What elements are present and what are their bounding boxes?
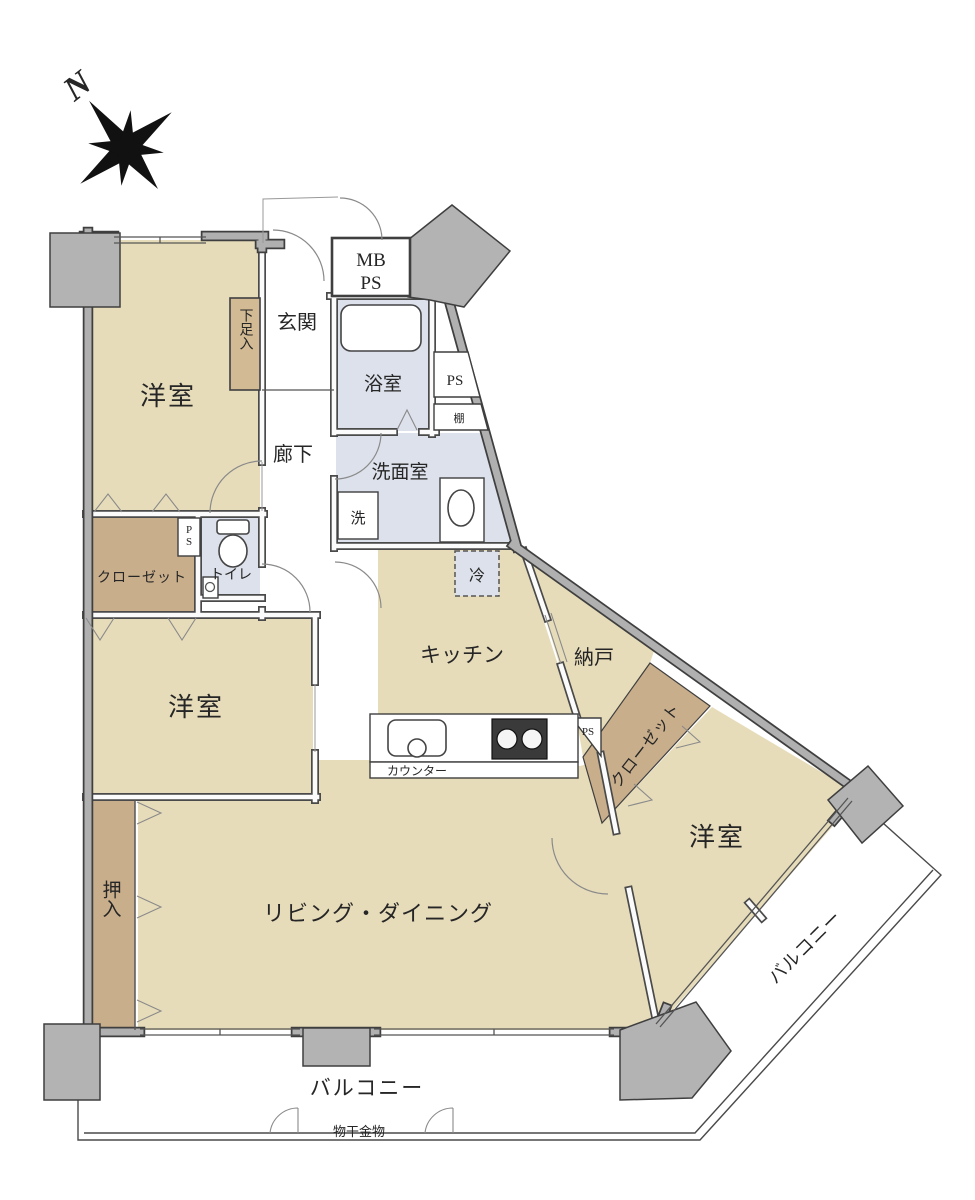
room-bathroom-label: 浴室 <box>364 373 402 395</box>
laundry-bracket-icon <box>425 1108 453 1133</box>
pillar <box>50 233 120 307</box>
pillar <box>303 1028 370 1066</box>
room-entrance-label: 玄関 <box>277 311 317 334</box>
ps-shaft-bath-label: PS <box>447 373 464 389</box>
room-washroom-label: 洗面室 <box>371 461 428 483</box>
room-kitchen-label: キッチン <box>420 643 504 667</box>
pillar <box>44 1024 100 1100</box>
shelf-label: 棚 <box>454 411 465 425</box>
room-living-dining-label: リビング・ダイニング <box>263 901 493 926</box>
closet-a-label: クローゼット <box>97 570 187 586</box>
room-hallway-label: 廊下 <box>273 443 313 466</box>
meter-box-label-2: PS <box>360 273 381 294</box>
compass-rose-icon: N <box>21 36 205 226</box>
balcony-east-label: バルコニー <box>764 906 845 987</box>
ps-shaft-toilet-label: PS <box>183 524 195 548</box>
counter-label: カウンター <box>387 764 447 778</box>
washing-machine-label: 洗 <box>350 510 365 527</box>
room-bedroom-2-label: 洋室 <box>168 693 224 722</box>
laundry-hardware-label: 物干金物 <box>333 1124 385 1139</box>
vanity-sink-icon <box>448 490 474 526</box>
laundry-bracket-icon <box>270 1108 298 1133</box>
pillar <box>408 205 510 307</box>
oshiire-label: 押入 <box>100 880 122 918</box>
bathtub-icon <box>341 305 421 351</box>
balcony-south-label: バルコニー <box>310 1076 425 1100</box>
refrigerator-label: 冷 <box>469 567 485 585</box>
porch-outline <box>263 197 338 243</box>
floor-plan-page: N 洋室 洋室 洋室 リビング・ダイニング キッチン 納戸 玄関 廊下 浴室 洗… <box>0 0 975 1200</box>
room-toilet-label: トイレ <box>210 568 252 583</box>
room-storage-label: 納戸 <box>574 646 614 669</box>
ps-shaft-counter-label: PS <box>582 726 594 738</box>
floor-plan-canvas: N 洋室 洋室 洋室 リビング・ダイニング キッチン 納戸 玄関 廊下 浴室 洗… <box>0 0 975 1200</box>
shoe-box-label: 下足入 <box>238 308 254 350</box>
room-bedroom-3-label: 洋室 <box>689 823 745 852</box>
compass-north-label: N <box>56 63 100 109</box>
meter-box-label-1: MB <box>356 250 386 271</box>
room-bedroom-1-label: 洋室 <box>140 382 196 411</box>
